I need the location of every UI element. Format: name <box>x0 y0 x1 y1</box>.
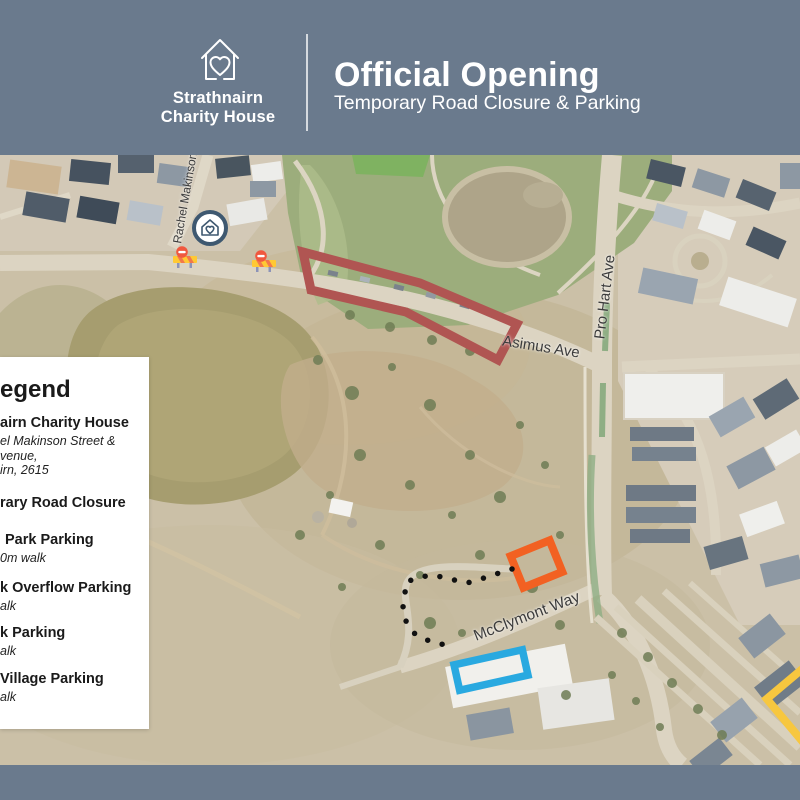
legend-item-name: Village Parking <box>0 671 147 687</box>
org-name: Strathnairn Charity House <box>118 89 318 128</box>
legend-item-park-parking: Park Parking 0m walk <box>0 532 147 566</box>
house-heart-marker-icon <box>191 209 229 247</box>
legend-item-name: Park Parking <box>0 532 147 548</box>
legend-item-overflow-parking: k Overflow Parking alk <box>0 580 147 614</box>
org-name-line2: Charity House <box>118 108 318 127</box>
legend-item-detail: el Makinson Street & <box>0 434 147 449</box>
legend-item-detail: alk <box>0 690 147 705</box>
legend-item-charity-house: airn Charity House el Makinson Street & … <box>0 415 147 478</box>
legend-item-name: airn Charity House <box>0 415 147 431</box>
legend-item-detail: irn, 2615 <box>0 463 147 478</box>
legend-item-village-parking: Village Parking alk <box>0 671 147 705</box>
header-divider <box>306 34 308 131</box>
road-closed-barrier-icon-west <box>172 246 198 269</box>
legend-item-road-closure: rary Road Closure <box>0 495 147 514</box>
legend-item-name: k Parking <box>0 625 147 641</box>
page-subtitle: Temporary Road Closure & Parking <box>334 92 641 115</box>
road-closed-barrier-icon-east <box>251 250 277 273</box>
legend-item-detail: alk <box>0 644 147 659</box>
venue-marker <box>191 209 229 247</box>
page-title: Official Opening <box>334 56 600 95</box>
road-closure-outline <box>303 252 517 360</box>
parking-yellow-outline <box>767 664 800 748</box>
legend-title: egend <box>0 376 71 404</box>
footer-band <box>0 765 800 800</box>
header-band: Strathnairn Charity House Official Openi… <box>0 0 800 155</box>
parking-orange-outline <box>511 540 563 587</box>
legend-item-detail: 0m walk <box>0 551 147 566</box>
legend-item-park-parking-2: k Parking alk <box>0 625 147 659</box>
legend-item-detail: venue, <box>0 449 147 464</box>
legend-item-name: rary Road Closure <box>0 495 147 511</box>
legend-item-name: k Overflow Parking <box>0 580 147 596</box>
satellite-map: Rachel Makinson Pro Hart Ave Asimus Ave … <box>0 155 800 765</box>
legend-panel: egend airn Charity House el Makinson Str… <box>0 357 149 729</box>
org-name-line1: Strathnairn <box>118 89 318 108</box>
house-heart-logo-icon <box>197 35 243 83</box>
parking-blue-outline <box>454 650 528 691</box>
legend-item-detail: alk <box>0 599 147 614</box>
